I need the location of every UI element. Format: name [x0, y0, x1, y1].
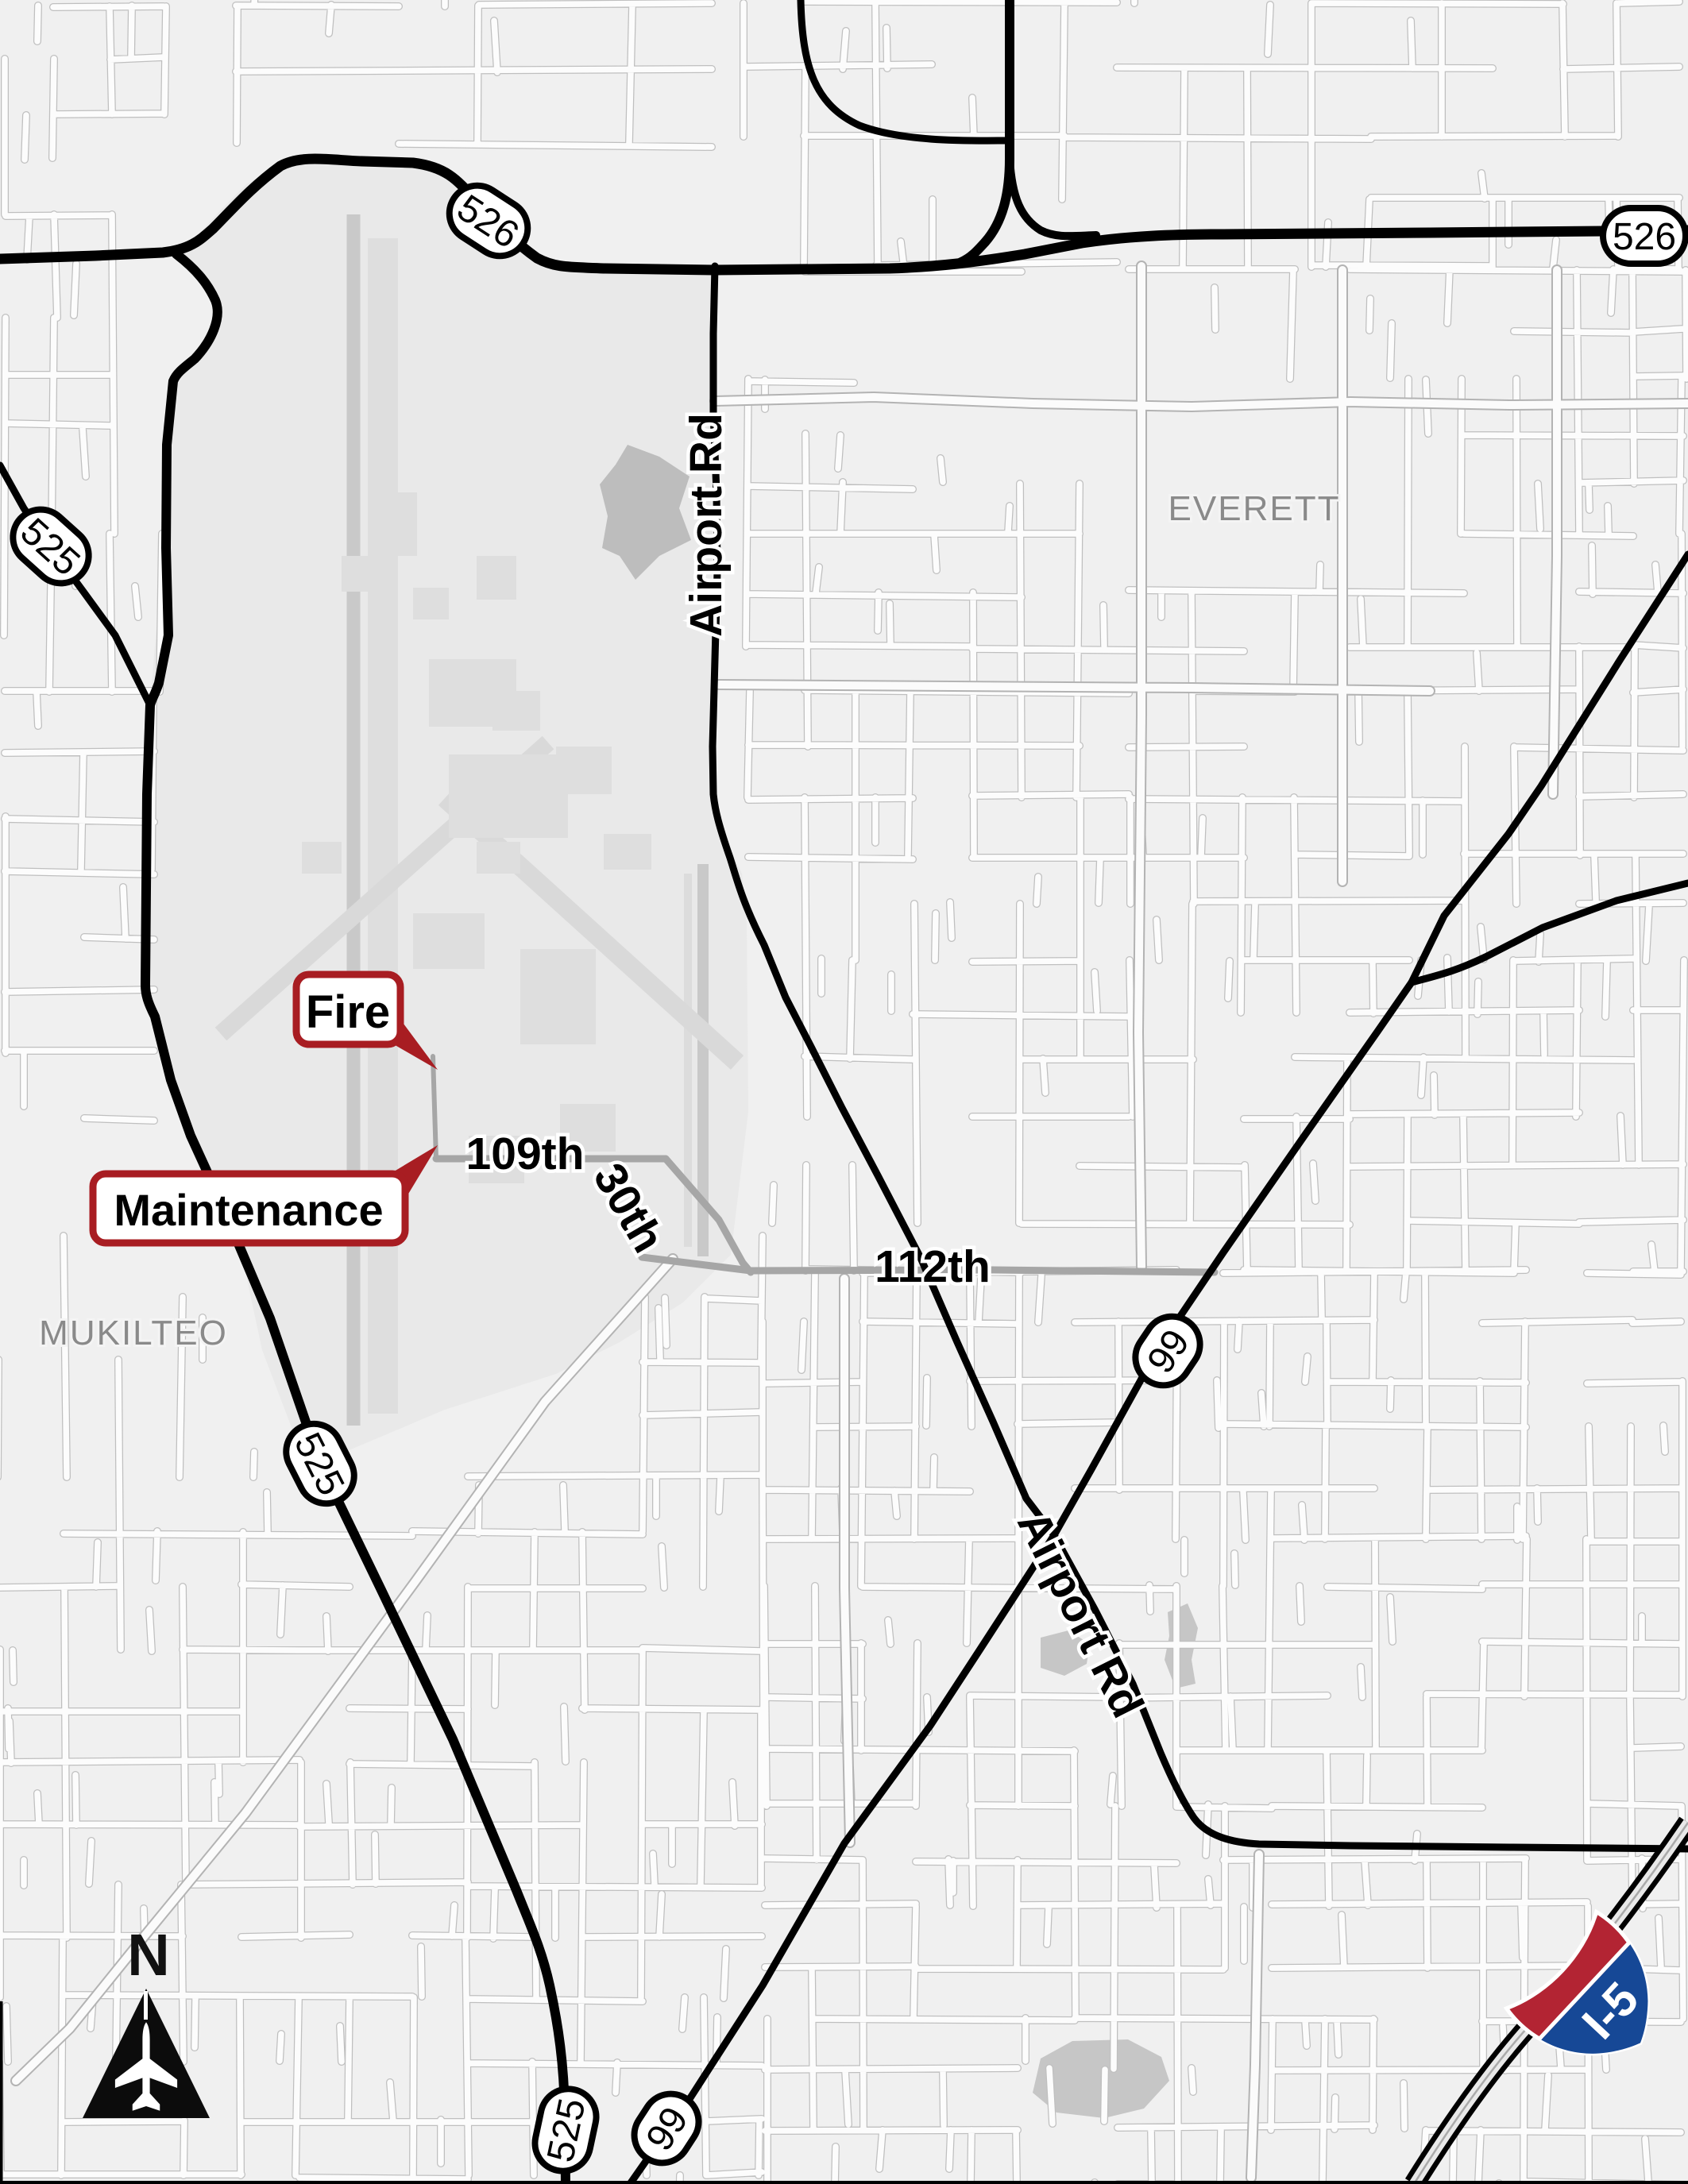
svg-text:EVERETT: EVERETT: [1168, 489, 1341, 528]
svg-text:112th: 112th: [875, 1241, 991, 1292]
svg-text:Maintenance: Maintenance: [114, 1185, 383, 1235]
svg-text:N: N: [127, 1922, 169, 1988]
svg-text:Fire: Fire: [306, 986, 390, 1038]
svg-text:Airport Rd: Airport Rd: [681, 413, 732, 637]
svg-text:526: 526: [1613, 216, 1676, 258]
svg-text:MUKILTEO: MUKILTEO: [39, 1314, 228, 1352]
svg-text:109th: 109th: [466, 1129, 585, 1179]
